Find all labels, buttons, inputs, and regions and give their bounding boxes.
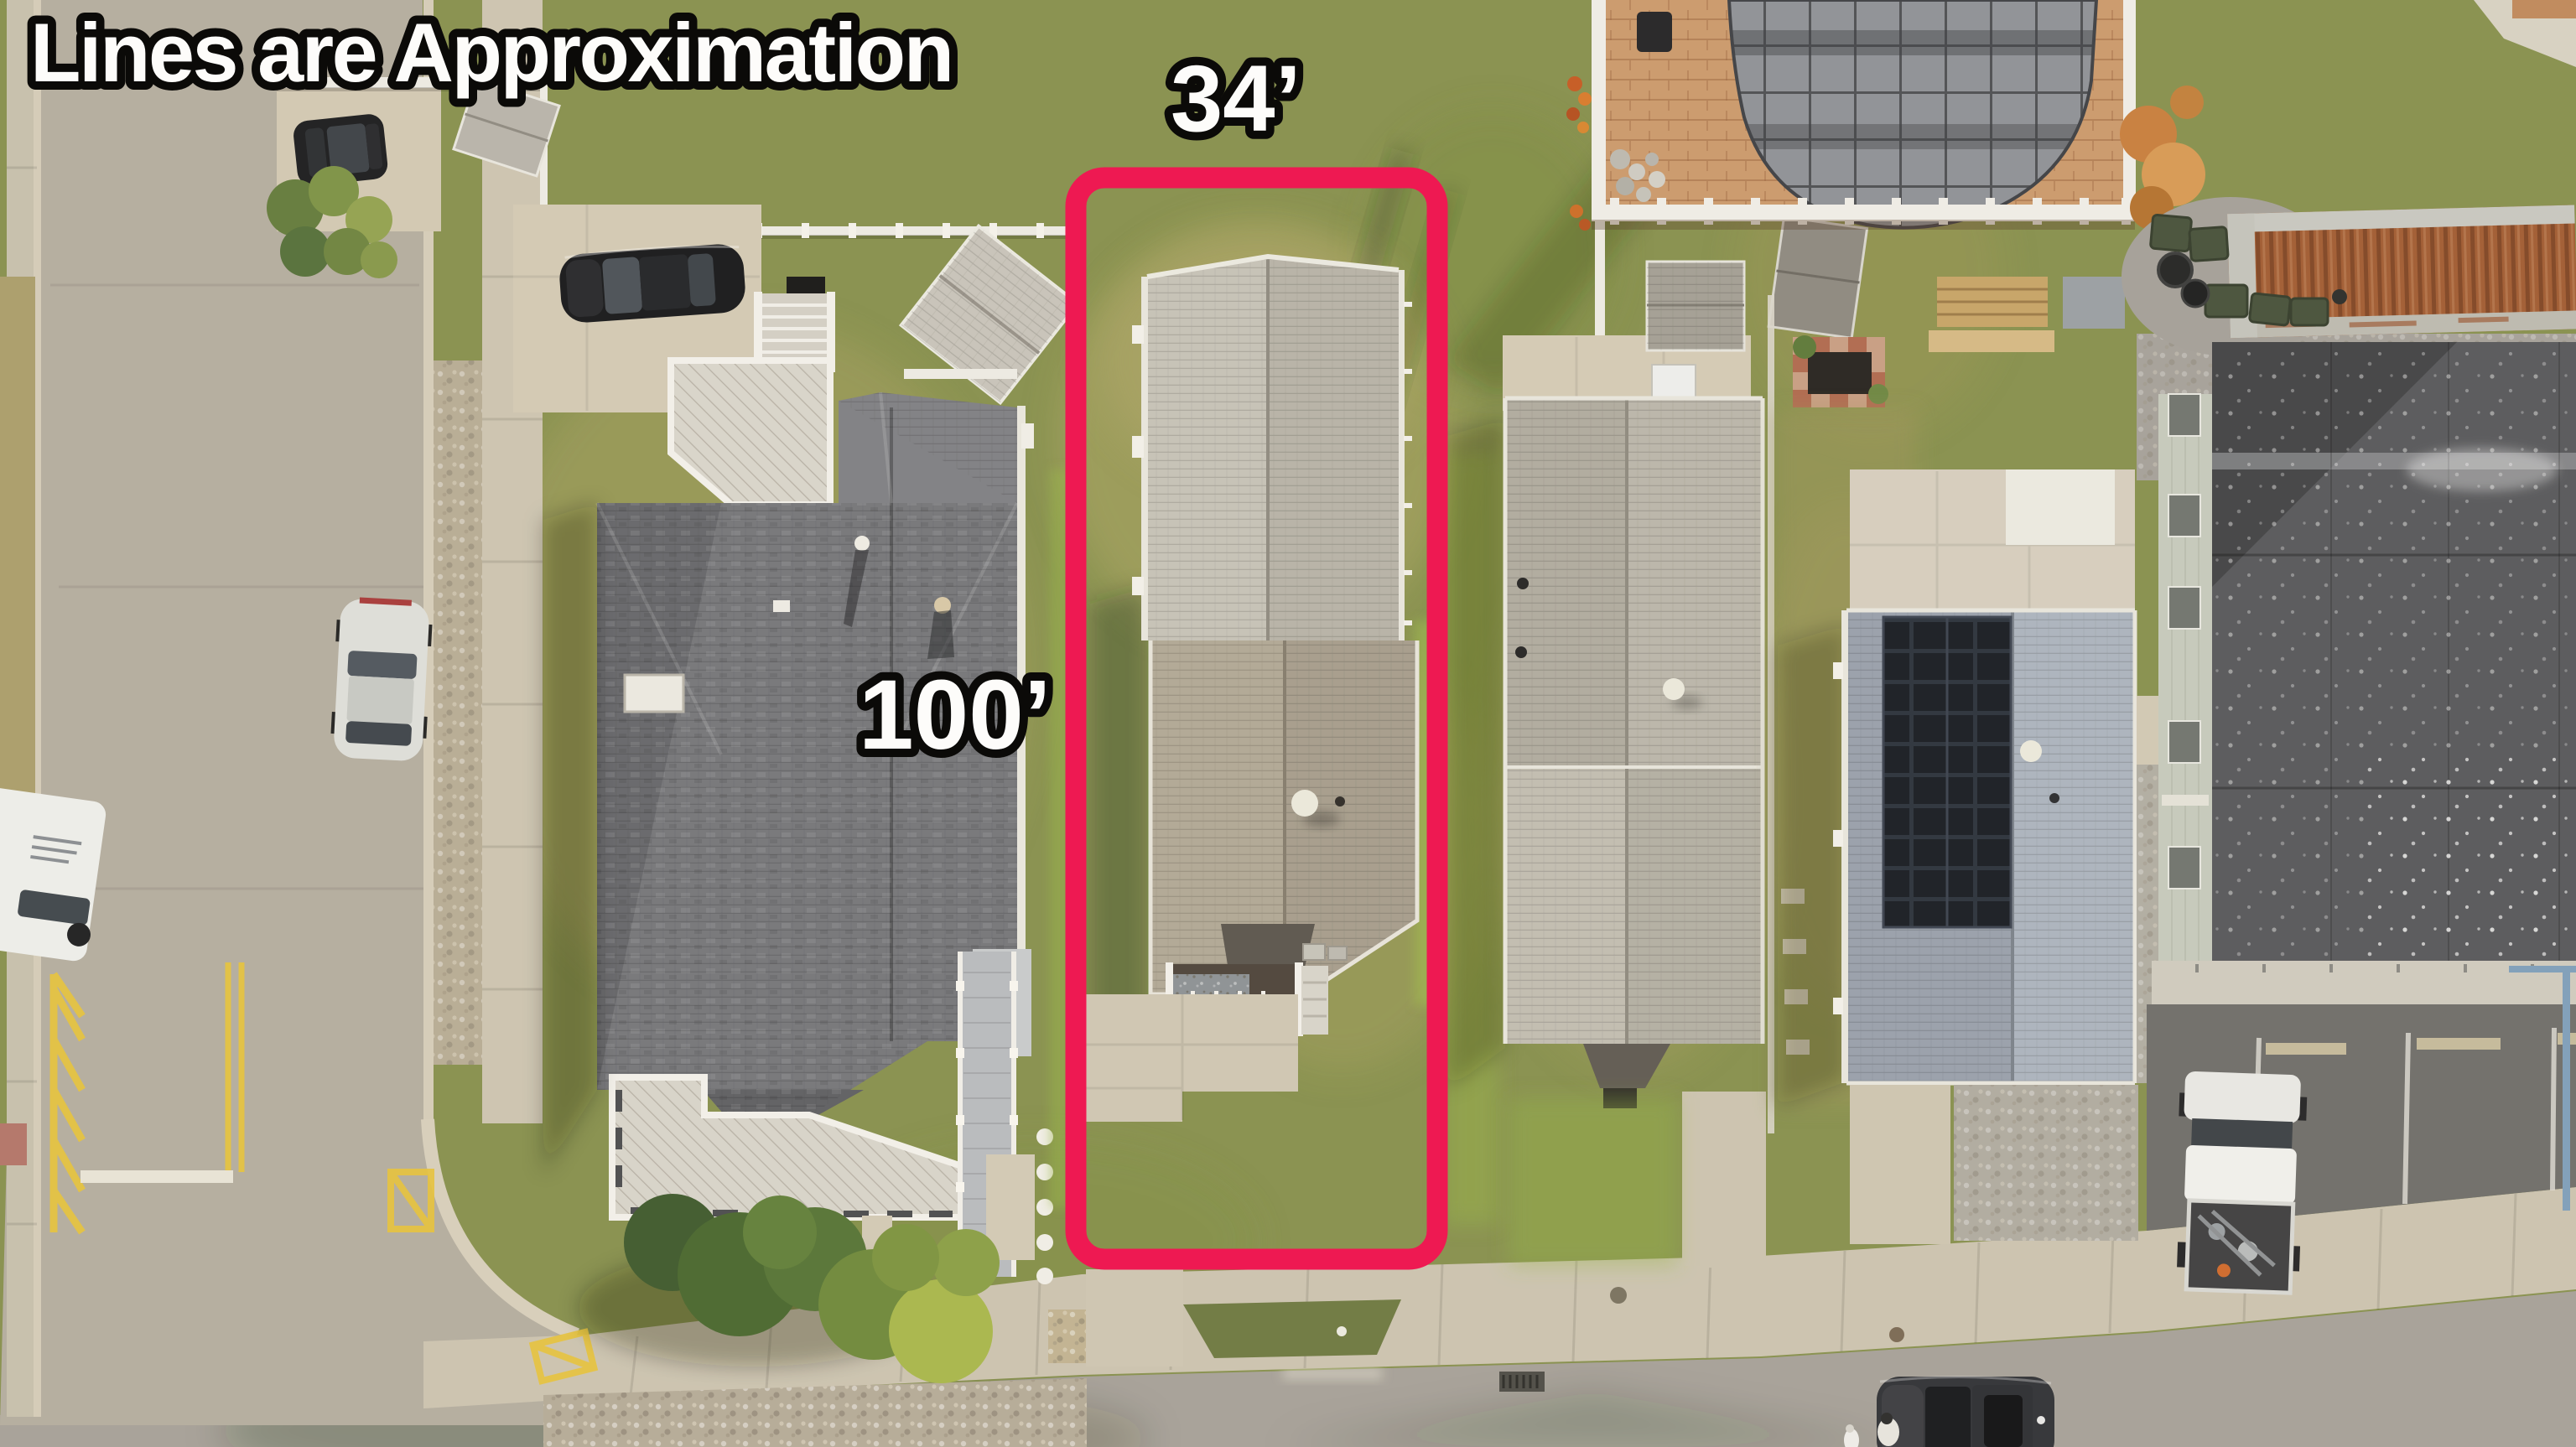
aerial-photo-canvas: Lines are Approximation 34’ 100’ <box>0 0 2576 1447</box>
photo-haze <box>0 0 2576 1447</box>
aerial-photo: Lines are Approximation 34’ 100’ <box>0 0 2576 1447</box>
